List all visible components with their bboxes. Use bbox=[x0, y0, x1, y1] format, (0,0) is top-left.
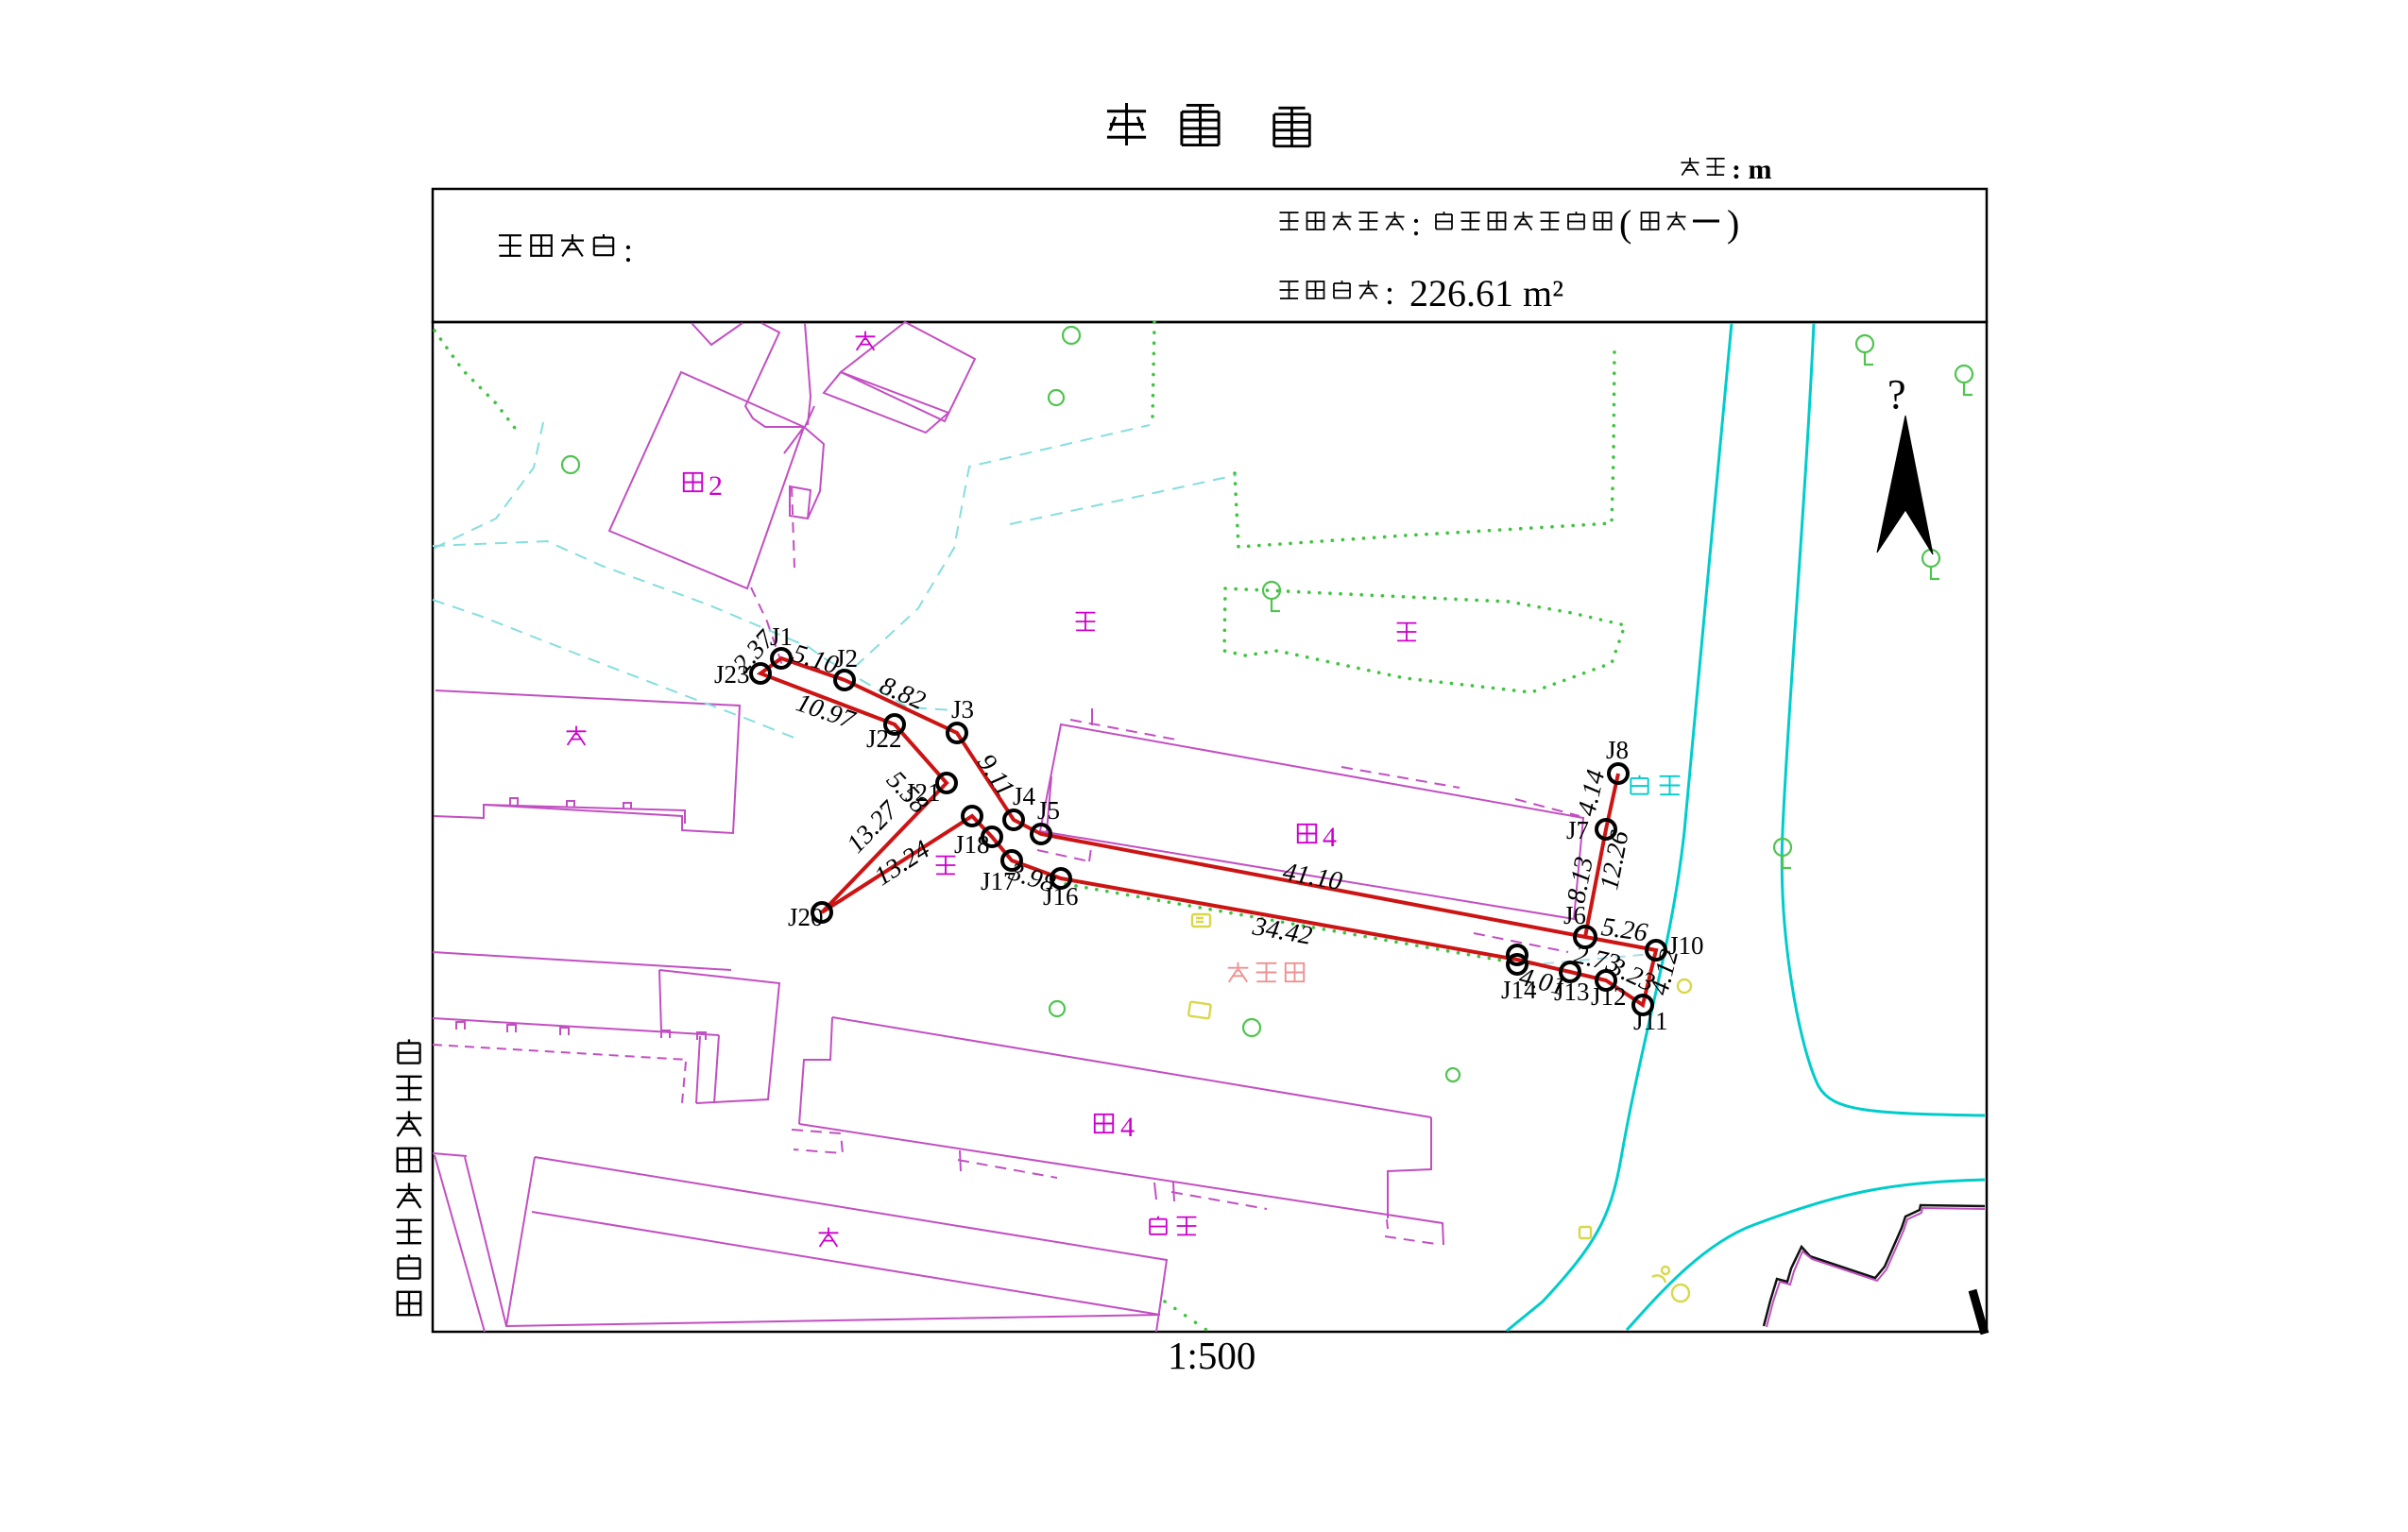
svg-text:J12: J12 bbox=[1591, 982, 1627, 1011]
svg-text:J5: J5 bbox=[1037, 796, 1060, 825]
svg-text:J18: J18 bbox=[954, 830, 990, 859]
svg-text:2: 2 bbox=[709, 470, 723, 502]
svg-text:J7: J7 bbox=[1566, 816, 1589, 844]
svg-text:J6: J6 bbox=[1563, 901, 1586, 929]
svg-text:J20: J20 bbox=[788, 903, 824, 931]
svg-text:4: 4 bbox=[1323, 822, 1337, 853]
svg-text:1:500: 1:500 bbox=[1168, 1334, 1255, 1377]
svg-text:: m: : m bbox=[1732, 154, 1771, 185]
svg-text:4: 4 bbox=[1120, 1112, 1135, 1143]
svg-text:J11: J11 bbox=[1633, 1007, 1668, 1035]
svg-text:?: ? bbox=[1887, 371, 1906, 417]
svg-text::: : bbox=[1411, 205, 1421, 243]
svg-text:J3: J3 bbox=[951, 695, 974, 723]
svg-text::: : bbox=[1385, 274, 1394, 312]
svg-text:226.61 m²: 226.61 m² bbox=[1409, 272, 1563, 315]
svg-text:): ) bbox=[1727, 202, 1739, 245]
svg-text::: : bbox=[623, 231, 633, 269]
svg-text:J22: J22 bbox=[866, 724, 902, 753]
svg-text:J8: J8 bbox=[1606, 736, 1629, 764]
svg-text:(: ( bbox=[1619, 202, 1631, 245]
